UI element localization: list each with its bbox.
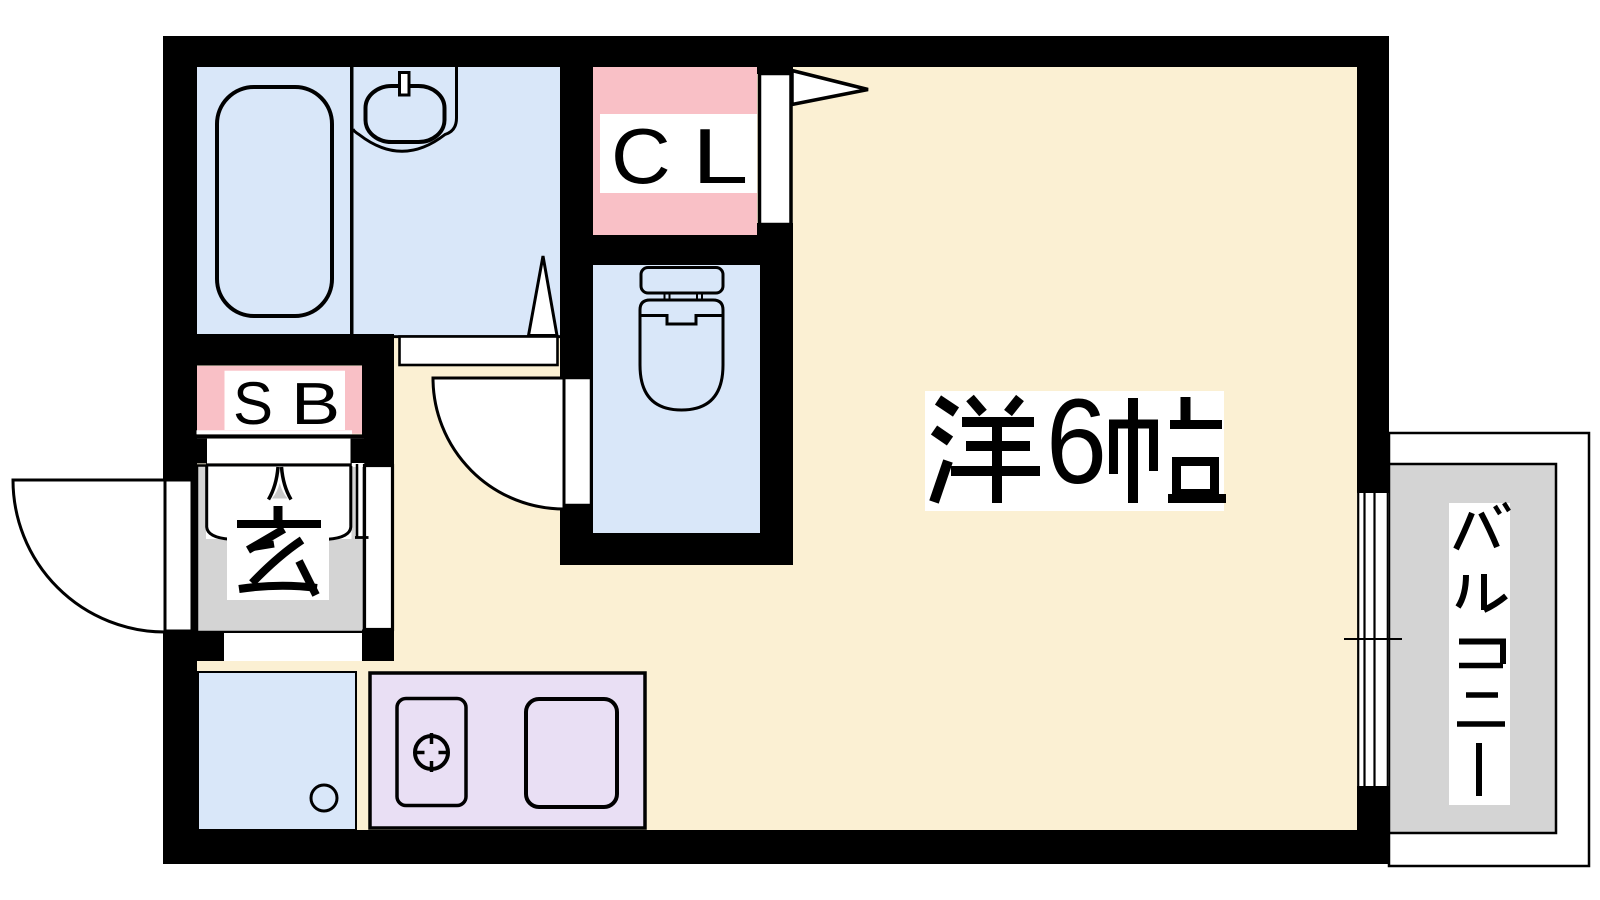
svg-text:B: B [291,372,340,437]
svg-text:S: S [233,370,273,437]
svg-text:L: L [692,113,748,200]
svg-text:C: C [611,113,671,200]
svg-text:6: 6 [1046,373,1107,509]
